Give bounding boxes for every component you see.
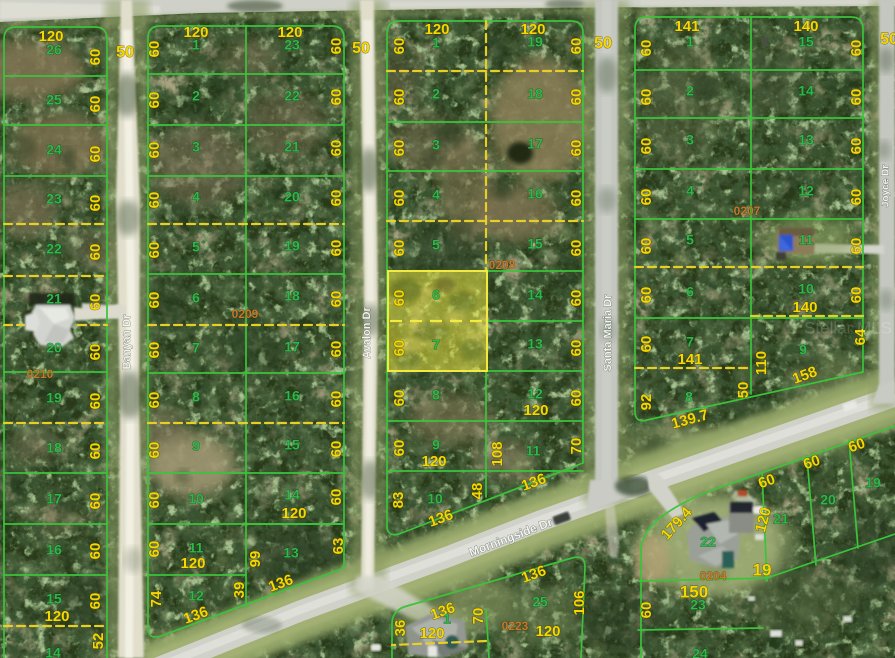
svg-text:50: 50 (880, 31, 895, 48)
svg-text:5: 5 (686, 232, 694, 248)
svg-text:Avalon Dr: Avalon Dr (361, 307, 373, 359)
svg-text:63: 63 (330, 538, 347, 555)
svg-text:60: 60 (328, 391, 345, 408)
svg-text:60: 60 (568, 190, 585, 207)
svg-text:60: 60 (87, 244, 104, 261)
svg-text:39: 39 (231, 582, 248, 599)
svg-text:4: 4 (686, 183, 694, 199)
svg-text:141: 141 (674, 18, 699, 35)
svg-text:52: 52 (90, 633, 107, 650)
svg-text:48: 48 (469, 483, 486, 500)
svg-text:4: 4 (432, 187, 440, 203)
svg-text:60: 60 (568, 240, 585, 257)
svg-text:120: 120 (421, 453, 446, 470)
svg-text:0207: 0207 (734, 204, 761, 218)
svg-text:9: 9 (192, 438, 200, 454)
svg-text:2: 2 (432, 86, 440, 102)
svg-text:1: 1 (686, 34, 694, 50)
svg-text:24: 24 (46, 142, 62, 158)
svg-text:60: 60 (146, 342, 163, 359)
svg-text:60: 60 (568, 140, 585, 157)
svg-text:Joyce Dr: Joyce Dr (881, 165, 892, 207)
svg-text:50: 50 (735, 382, 752, 399)
svg-text:14: 14 (284, 487, 300, 503)
svg-text:21: 21 (284, 139, 300, 155)
svg-text:60: 60 (328, 38, 345, 55)
svg-text:60: 60 (638, 238, 655, 255)
svg-text:1: 1 (443, 611, 451, 627)
svg-text:60: 60 (328, 89, 345, 106)
svg-text:6: 6 (432, 287, 440, 303)
svg-text:20: 20 (820, 492, 836, 508)
svg-text:60: 60 (391, 240, 408, 257)
svg-text:60: 60 (391, 390, 408, 407)
svg-text:60: 60 (568, 290, 585, 307)
svg-text:60: 60 (638, 138, 655, 155)
svg-text:25: 25 (532, 594, 548, 610)
svg-text:22: 22 (46, 241, 62, 257)
svg-text:23: 23 (46, 191, 62, 207)
svg-text:22: 22 (284, 88, 300, 104)
svg-text:8: 8 (685, 389, 693, 405)
svg-text:60: 60 (391, 140, 408, 157)
svg-text:60: 60 (87, 393, 104, 410)
svg-text:50: 50 (352, 40, 370, 57)
svg-text:60: 60 (87, 543, 104, 560)
svg-text:120: 120 (535, 623, 560, 640)
svg-text:60: 60 (568, 340, 585, 357)
svg-text:20: 20 (46, 340, 62, 356)
svg-text:20: 20 (284, 189, 300, 205)
svg-text:60: 60 (87, 96, 104, 113)
svg-text:19: 19 (46, 390, 62, 406)
svg-text:14: 14 (527, 287, 543, 303)
svg-text:60: 60 (87, 593, 104, 610)
svg-text:3: 3 (432, 137, 440, 153)
svg-text:7: 7 (686, 334, 694, 350)
svg-text:50: 50 (594, 35, 612, 52)
svg-text:16: 16 (527, 186, 543, 202)
svg-text:60: 60 (146, 492, 163, 509)
svg-text:60: 60 (328, 441, 345, 458)
svg-text:10: 10 (427, 491, 443, 507)
svg-text:120: 120 (523, 402, 548, 419)
svg-text:50: 50 (116, 44, 134, 61)
svg-text:60: 60 (87, 49, 104, 66)
svg-text:60: 60 (328, 291, 345, 308)
svg-text:3: 3 (192, 139, 200, 155)
svg-text:60: 60 (568, 38, 585, 55)
svg-text:0210: 0210 (27, 367, 54, 381)
svg-text:60: 60 (391, 440, 408, 457)
svg-text:110: 110 (753, 351, 770, 375)
svg-text:60: 60 (146, 292, 163, 309)
svg-text:60: 60 (638, 287, 655, 304)
svg-text:12: 12 (527, 386, 543, 402)
svg-text:18: 18 (284, 288, 300, 304)
svg-text:13: 13 (798, 132, 814, 148)
svg-text:60: 60 (391, 190, 408, 207)
svg-text:108: 108 (489, 441, 506, 466)
svg-text:17: 17 (527, 136, 543, 152)
svg-text:60: 60 (391, 89, 408, 106)
svg-text:120: 120 (44, 608, 69, 625)
svg-text:11: 11 (799, 232, 814, 248)
svg-text:92: 92 (638, 394, 655, 411)
svg-text:14: 14 (798, 83, 814, 99)
svg-text:60: 60 (638, 40, 655, 57)
svg-text:60: 60 (328, 341, 345, 358)
svg-text:9: 9 (799, 342, 807, 358)
svg-text:2: 2 (192, 88, 200, 104)
svg-text:60: 60 (146, 392, 163, 409)
svg-text:0223: 0223 (502, 619, 529, 633)
svg-text:3: 3 (686, 132, 694, 148)
svg-text:60: 60 (146, 541, 163, 558)
svg-text:25: 25 (46, 92, 62, 108)
svg-text:16: 16 (284, 388, 300, 404)
svg-text:60: 60 (146, 92, 163, 109)
svg-text:60: 60 (638, 189, 655, 206)
svg-text:0209: 0209 (232, 307, 259, 321)
svg-text:120: 120 (180, 555, 205, 572)
svg-text:10: 10 (188, 491, 204, 507)
svg-text:11: 11 (526, 443, 541, 459)
svg-text:12: 12 (798, 183, 814, 199)
svg-text:10: 10 (798, 281, 814, 297)
svg-text:16: 16 (46, 542, 62, 558)
svg-text:60: 60 (638, 89, 655, 106)
svg-text:Banyan Dr: Banyan Dr (121, 314, 133, 370)
svg-text:15: 15 (798, 34, 814, 50)
svg-text:6: 6 (192, 290, 200, 306)
svg-text:74: 74 (148, 590, 165, 607)
svg-text:18: 18 (46, 440, 62, 456)
svg-text:60: 60 (87, 146, 104, 163)
svg-text:5: 5 (192, 239, 200, 255)
svg-text:120: 120 (281, 505, 306, 522)
svg-text:60: 60 (568, 390, 585, 407)
svg-text:13: 13 (283, 545, 299, 561)
svg-text:17: 17 (46, 491, 62, 507)
svg-text:Stellar MLS: Stellar MLS (804, 318, 892, 337)
svg-text:60: 60 (848, 189, 865, 206)
svg-text:60: 60 (146, 192, 163, 209)
svg-text:60: 60 (87, 195, 104, 212)
svg-text:60: 60 (638, 336, 655, 353)
svg-text:60: 60 (328, 240, 345, 257)
svg-text:70: 70 (470, 608, 487, 625)
svg-text:99: 99 (247, 551, 264, 568)
svg-text:1: 1 (192, 37, 200, 53)
svg-text:83: 83 (390, 492, 407, 509)
svg-text:60: 60 (848, 89, 865, 106)
svg-text:0208: 0208 (489, 258, 516, 272)
svg-text:18: 18 (527, 86, 543, 102)
svg-text:60: 60 (146, 142, 163, 159)
svg-text:23: 23 (690, 597, 706, 613)
svg-text:60: 60 (391, 340, 408, 357)
svg-text:60: 60 (87, 294, 104, 311)
svg-text:17: 17 (284, 339, 300, 355)
svg-text:140: 140 (792, 299, 817, 316)
svg-text:2: 2 (686, 83, 694, 99)
svg-text:60: 60 (391, 38, 408, 55)
svg-text:60: 60 (146, 242, 163, 259)
svg-text:120: 120 (419, 625, 444, 642)
svg-text:5: 5 (432, 237, 440, 253)
svg-text:15: 15 (527, 236, 543, 252)
svg-text:11: 11 (189, 540, 204, 556)
svg-text:8: 8 (432, 387, 440, 403)
svg-text:60: 60 (87, 443, 104, 460)
svg-text:15: 15 (46, 591, 62, 607)
svg-text:60: 60 (568, 89, 585, 106)
svg-text:7: 7 (192, 340, 200, 356)
svg-text:60: 60 (146, 442, 163, 459)
svg-text:Santa Maria Dr: Santa Maria Dr (602, 294, 614, 372)
svg-text:19: 19 (753, 560, 772, 579)
svg-text:36: 36 (392, 620, 409, 637)
svg-text:24: 24 (692, 646, 708, 658)
svg-text:6: 6 (686, 284, 694, 300)
svg-text:60: 60 (146, 41, 163, 58)
svg-text:106: 106 (571, 590, 588, 615)
svg-text:60: 60 (328, 140, 345, 157)
svg-text:21: 21 (773, 511, 789, 527)
svg-text:140: 140 (793, 18, 818, 35)
svg-text:26: 26 (46, 42, 62, 58)
svg-text:14: 14 (45, 645, 61, 658)
svg-text:60: 60 (87, 493, 104, 510)
svg-text:141: 141 (677, 351, 702, 368)
svg-text:19: 19 (527, 34, 543, 50)
svg-text:70: 70 (568, 438, 585, 455)
svg-text:21: 21 (46, 291, 62, 307)
svg-text:60: 60 (391, 290, 408, 307)
svg-text:4: 4 (192, 189, 200, 205)
svg-text:12: 12 (188, 588, 204, 604)
svg-text:22: 22 (700, 534, 716, 550)
svg-text:15: 15 (284, 437, 300, 453)
svg-text:60: 60 (848, 238, 865, 255)
svg-text:19: 19 (284, 238, 300, 254)
svg-text:0204: 0204 (700, 569, 727, 583)
svg-text:60: 60 (848, 138, 865, 155)
svg-text:60: 60 (848, 287, 865, 304)
svg-text:13: 13 (527, 336, 543, 352)
svg-text:60: 60 (638, 602, 655, 619)
svg-text:23: 23 (284, 37, 300, 53)
svg-text:1: 1 (432, 35, 440, 51)
svg-text:7: 7 (432, 337, 440, 353)
svg-text:60: 60 (328, 489, 345, 506)
svg-text:60: 60 (87, 344, 104, 361)
svg-text:19: 19 (865, 475, 881, 491)
svg-text:60: 60 (328, 190, 345, 207)
svg-text:9: 9 (432, 437, 440, 453)
svg-text:60: 60 (848, 40, 865, 57)
svg-text:8: 8 (192, 389, 200, 405)
